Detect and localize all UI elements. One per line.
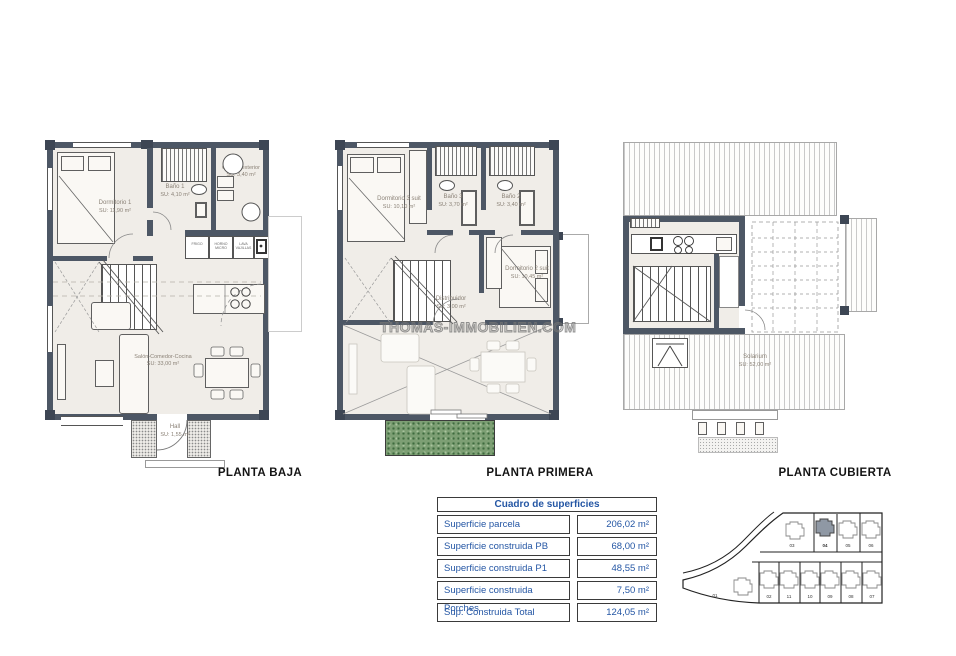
side-porch-roof xyxy=(845,218,877,312)
surfaces-table: Cuadro de superficies Superficie parcela… xyxy=(437,497,657,622)
wall xyxy=(521,230,559,235)
kitchen-island-icon xyxy=(193,284,265,314)
roof-area xyxy=(623,142,837,216)
room-label-bano2: Baño 2 SU: 3,40 m² xyxy=(491,194,531,208)
table-row: Sup. Construida Total 124,05 m² xyxy=(437,603,657,622)
wall xyxy=(133,256,153,261)
bath-window-icon xyxy=(435,146,477,176)
door-opening xyxy=(739,306,745,328)
room-label-solarium: Solarium SU: 52,00 m² xyxy=(724,354,786,368)
row-value: 124,05 m² xyxy=(577,603,657,622)
wall xyxy=(147,148,153,208)
pillar xyxy=(840,306,849,315)
deck-step xyxy=(692,410,778,420)
post-icon xyxy=(717,422,726,435)
appliance-label: FRIGO xyxy=(191,242,202,246)
room-label-bano1: Baño 1 SU: 4,10 m² xyxy=(157,184,193,198)
pillow-icon xyxy=(377,157,401,173)
watermark-text: THOMAS-IMMOBILIEN.COM xyxy=(380,319,590,335)
pillar xyxy=(259,410,269,420)
plot-label-03: 03 xyxy=(789,543,795,548)
plot-label-08: 08 xyxy=(848,594,854,599)
window xyxy=(337,166,343,210)
balcony-outline xyxy=(559,234,589,324)
sink-icon xyxy=(497,180,513,191)
table-row: Superficie parcela 206,02 m² xyxy=(437,515,657,534)
title-planta-primera: PLANTA PRIMERA xyxy=(460,467,620,479)
kitchen-sink-icon xyxy=(256,239,267,254)
post-icon xyxy=(736,422,745,435)
room-label-salon: Salón-Comedor-Cocina SU: 33,00 m² xyxy=(129,354,197,368)
sink-icon xyxy=(191,184,207,195)
plot-label-05: 05 xyxy=(845,543,851,548)
laundry-unit-icon xyxy=(217,190,234,201)
armchair-icon xyxy=(91,302,131,330)
sofa-icon xyxy=(119,334,149,414)
planter-icon xyxy=(385,420,495,456)
window xyxy=(73,142,131,148)
pillow-icon xyxy=(61,156,84,171)
post-icon xyxy=(698,422,707,435)
room-label-dormitorio2: Dormitorio 2 suit SU: 10,45 m² xyxy=(499,266,555,280)
row-value: 206,02 m² xyxy=(577,515,657,534)
side-table-icon xyxy=(95,360,114,387)
floor-plan-planta-cubierta: Solarium SU: 52,00 m² xyxy=(620,138,890,473)
row-label: Superficie construida PB xyxy=(437,537,570,556)
title-planta-baja: PLANTA BAJA xyxy=(180,467,340,479)
row-label: Superficie construida Porches xyxy=(437,581,570,600)
appliance-label: HORNO MICRO xyxy=(214,242,227,250)
room-label-hall: Hall SU: 1,55 m² xyxy=(149,424,201,438)
post-icon xyxy=(755,422,764,435)
pillar xyxy=(549,410,559,420)
row-value: 48,55 m² xyxy=(577,559,657,578)
row-label: Superficie construida P1 xyxy=(437,559,570,578)
row-label: Superficie parcela xyxy=(437,515,570,534)
site-plan: 01 03 04 05 06 02 11 10 09 08 07 xyxy=(682,500,907,635)
pillar xyxy=(45,140,55,150)
wall xyxy=(481,148,486,210)
wardrobe-icon xyxy=(409,150,427,224)
wall xyxy=(53,256,107,261)
pillar xyxy=(549,140,559,150)
roof-hatch-icon xyxy=(652,338,688,368)
shaft xyxy=(719,256,739,308)
table-row: Superficie construida Porches 7,50 m² xyxy=(437,581,657,600)
wall xyxy=(211,148,216,236)
bath-window-icon xyxy=(489,146,535,176)
room-label-galeria: Galería exterior SU: 3,40 m² xyxy=(215,165,267,179)
pillar xyxy=(45,410,55,420)
title-planta-cubierta: PLANTA CUBIERTA xyxy=(755,467,915,479)
pillow-icon xyxy=(535,278,548,302)
row-value: 68,00 m² xyxy=(577,537,657,556)
plot-label-02: 02 xyxy=(766,594,772,599)
stairs-icon xyxy=(633,266,711,322)
gravel-area xyxy=(698,437,778,453)
door-opening xyxy=(157,414,187,420)
dining-table-icon xyxy=(205,358,249,388)
closet-icon xyxy=(486,237,502,289)
pillar xyxy=(840,215,849,224)
highlighted-plot-house xyxy=(816,519,834,536)
wall xyxy=(479,235,484,293)
room-label-distribuidor: Distribuidor SU: 3,00 m² xyxy=(419,296,483,310)
floor-plan-planta-baja: FRIGO HORNO MICRO LAVA VAJILLAS Dormitor… xyxy=(45,138,280,473)
neighbour-outline xyxy=(268,216,302,332)
wall xyxy=(427,230,453,235)
core-window xyxy=(630,218,660,228)
plot-label-09: 09 xyxy=(827,594,833,599)
room-label-dormitorio1: Dormitorio 1 SU: 11,90 m² xyxy=(89,200,141,214)
pillar xyxy=(335,410,345,420)
fridge-cell: FRIGO xyxy=(185,236,209,259)
table-row: Superficie construida PB 68,00 m² xyxy=(437,537,657,556)
pillow-icon xyxy=(350,157,374,173)
room-label-bano3: Baño 3 SU: 3,70 m² xyxy=(433,194,473,208)
dishwasher-cell: LAVA VAJILLAS xyxy=(233,236,254,259)
plot-label-01: 01 xyxy=(712,593,718,598)
table-row: Superficie construida P1 48,55 m² xyxy=(437,559,657,578)
plot-label-04: 04 xyxy=(822,543,828,548)
pillow-icon xyxy=(88,156,111,171)
window xyxy=(357,142,409,148)
window xyxy=(47,168,53,210)
row-value: 7,50 m² xyxy=(577,581,657,600)
row-label: Sup. Construida Total xyxy=(437,603,570,622)
sink-icon xyxy=(439,180,455,191)
pillar xyxy=(335,140,345,150)
window xyxy=(47,306,53,352)
pillar xyxy=(259,140,269,150)
toilet-icon xyxy=(195,202,207,218)
wardrobe-icon xyxy=(161,148,207,182)
floor-plan-planta-primera: Dormitorio 3 suit SU: 10,10 m² Baño 3 SU… xyxy=(335,138,595,473)
plot-label-06: 06 xyxy=(868,543,874,548)
stairs-icon xyxy=(393,260,451,322)
room-label-dormitorio3: Dormitorio 3 suit SU: 10,10 m² xyxy=(369,196,429,210)
window-sill xyxy=(61,416,123,426)
tv-unit-icon xyxy=(57,344,66,400)
plot-label-10: 10 xyxy=(807,594,813,599)
counter-module xyxy=(716,237,732,251)
plot-label-07: 07 xyxy=(869,594,875,599)
surfaces-table-title: Cuadro de superficies xyxy=(437,497,657,512)
oven-cell: HORNO MICRO xyxy=(209,236,233,259)
wall xyxy=(147,220,153,236)
appliance-label: LAVA VAJILLAS xyxy=(236,242,252,250)
sink-icon xyxy=(650,237,663,251)
plot-label-11: 11 xyxy=(787,594,792,599)
